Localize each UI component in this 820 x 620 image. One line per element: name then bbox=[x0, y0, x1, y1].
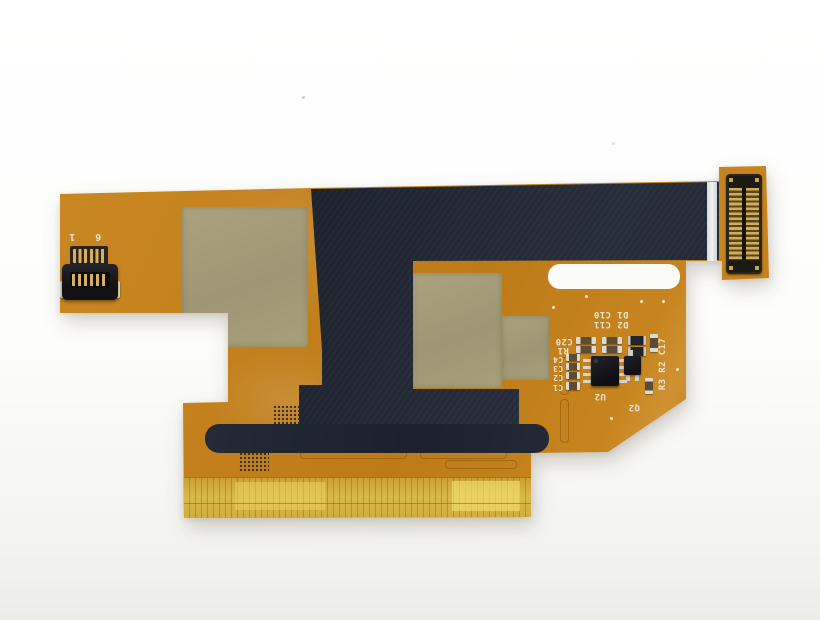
via-dot bbox=[552, 306, 555, 309]
gold-pads bbox=[73, 249, 105, 263]
bright-window bbox=[452, 481, 520, 511]
connector-body bbox=[62, 264, 118, 300]
smd-capacitor bbox=[602, 337, 622, 344]
via-dot bbox=[585, 295, 588, 298]
ic-u2-body bbox=[591, 356, 619, 386]
stiffener-window-center bbox=[412, 273, 502, 388]
coverlay-black-bar bbox=[205, 424, 549, 453]
connector-slot bbox=[70, 272, 110, 288]
stiffener-window-center-ext bbox=[502, 316, 549, 380]
transistor-leg bbox=[626, 374, 630, 381]
photo-background: D1 C10 D2 C11 C20 R1 C4 C3 C2 C1 U2 Q2 R… bbox=[0, 0, 820, 620]
smd-capacitor-c4 bbox=[566, 354, 580, 361]
gold-corner bbox=[729, 266, 733, 270]
gold-corner bbox=[755, 178, 759, 182]
via-dot bbox=[676, 368, 679, 371]
via-dot bbox=[671, 416, 674, 419]
silkscreen-label-c1: C1 bbox=[550, 382, 566, 392]
silkscreen-label-d1-c10: D1 C10 bbox=[588, 309, 634, 319]
silkscreen-label-q2: Q2 bbox=[624, 402, 644, 412]
stiffener-window-left bbox=[182, 207, 308, 347]
board-to-board-connector bbox=[726, 174, 762, 274]
smd-capacitor-c1 bbox=[566, 382, 580, 390]
connector-center-slot bbox=[742, 188, 746, 260]
translucent-contact-strip bbox=[183, 477, 531, 519]
trace-outline bbox=[445, 460, 517, 469]
coverlay-black-region bbox=[0, 0, 820, 620]
silkscreen-label-d2-c11: D2 C11 bbox=[588, 319, 634, 329]
connector-pin-column-left bbox=[729, 188, 742, 260]
smd-capacitor-c3 bbox=[566, 363, 580, 370]
smd-capacitor bbox=[645, 378, 653, 394]
silkscreen-pin1-marking: 1 bbox=[66, 231, 78, 241]
flex-cable-board: D1 C10 D2 C11 C20 R1 C4 C3 C2 C1 U2 Q2 R… bbox=[0, 0, 820, 620]
punched-slot bbox=[548, 264, 680, 289]
via-dot bbox=[662, 300, 665, 303]
gold-corner bbox=[755, 266, 759, 270]
silkscreen-label-c2: C2 bbox=[550, 372, 566, 382]
via-dot bbox=[610, 417, 613, 420]
alignment-stripe bbox=[707, 182, 717, 261]
transistor-leg bbox=[635, 374, 639, 381]
bright-window bbox=[235, 482, 325, 510]
strip-divider-line bbox=[183, 503, 531, 504]
gold-corner bbox=[729, 178, 733, 182]
via-dot bbox=[640, 300, 643, 303]
silkscreen-label-r3-r2-c17: R3 R2 C17 bbox=[657, 329, 669, 399]
smd-capacitor-c2 bbox=[566, 372, 580, 379]
smd-capacitor-c20 bbox=[576, 337, 596, 344]
silkscreen-pin6-marking: 6 bbox=[92, 231, 104, 241]
connector-pins bbox=[72, 274, 108, 286]
smd-resistor-r1 bbox=[576, 346, 596, 353]
connector-pad-field bbox=[70, 246, 108, 266]
connector-pin-column-right bbox=[746, 188, 759, 260]
smd-capacitor bbox=[602, 346, 622, 353]
transistor-q2-body bbox=[624, 356, 641, 375]
smd-diode-d1 bbox=[628, 336, 646, 345]
ic-pin1-dot bbox=[594, 359, 598, 363]
trace-outline bbox=[560, 399, 569, 443]
silkscreen-label-u2: U2 bbox=[590, 391, 610, 401]
